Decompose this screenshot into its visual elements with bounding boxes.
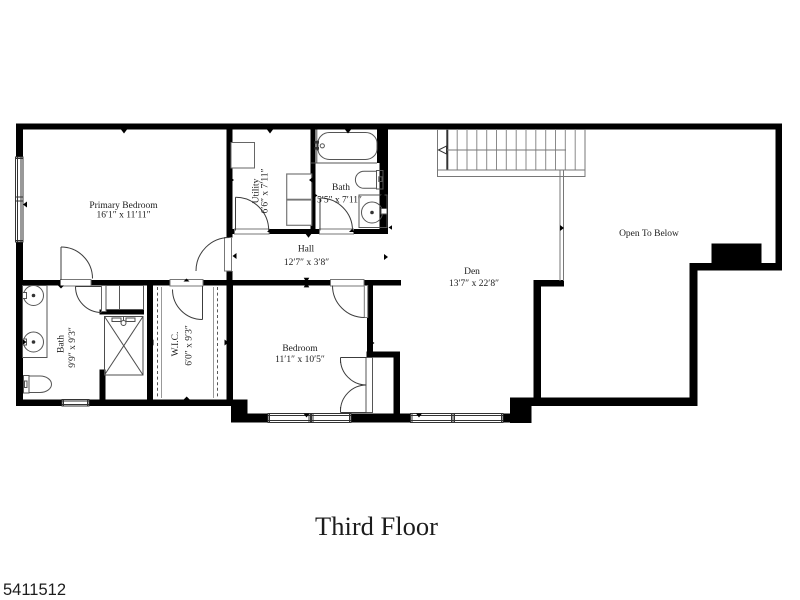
- svg-text:Bedroom: Bedroom: [282, 344, 318, 354]
- svg-text:5′5″ x 7′11″: 5′5″ x 7′11″: [317, 196, 362, 206]
- svg-text:6′0″ x 9′3″: 6′0″ x 9′3″: [185, 325, 195, 366]
- svg-text:13′7″ x 22′8″: 13′7″ x 22′8″: [449, 279, 499, 289]
- svg-text:Open To Below: Open To Below: [619, 229, 679, 239]
- svg-text:11′1″ x 10′5″: 11′1″ x 10′5″: [275, 355, 325, 365]
- svg-text:Bath: Bath: [57, 335, 67, 353]
- svg-text:9′9″ x 9′3″: 9′9″ x 9′3″: [68, 327, 78, 368]
- svg-text:W.I.C.: W.I.C.: [171, 332, 181, 357]
- svg-text:Hall: Hall: [298, 245, 315, 255]
- svg-text:5411512: 5411512: [3, 581, 66, 599]
- svg-text:Bath: Bath: [332, 183, 350, 193]
- svg-text:Den: Den: [464, 267, 480, 277]
- svg-text:6′6″ x 7′11″: 6′6″ x 7′11″: [261, 168, 271, 213]
- svg-text:16′1″ x 11′11″: 16′1″ x 11′11″: [96, 211, 150, 221]
- svg-text:Third Floor: Third Floor: [315, 511, 438, 541]
- svg-text:12′7″ x 3′8″: 12′7″ x 3′8″: [284, 258, 329, 268]
